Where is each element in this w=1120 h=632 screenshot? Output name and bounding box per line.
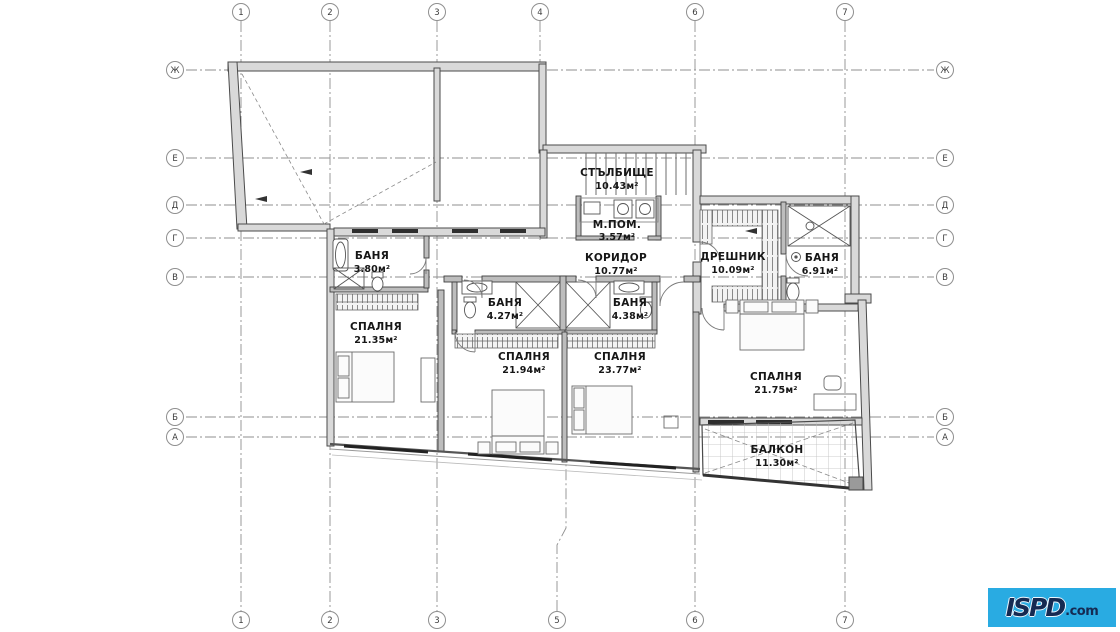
svg-text:Е: Е [942, 154, 947, 164]
wall-void-right [539, 64, 546, 153]
wall-corridor-a [444, 276, 462, 282]
room-label-bath-mid-right: БАНЯ [613, 297, 647, 309]
wall-column-stub [434, 68, 440, 201]
room-label-bath-east: БАНЯ [805, 252, 839, 264]
svg-text:В: В [942, 273, 948, 283]
wall-stair-top [543, 145, 706, 153]
svg-text:10.43м²: 10.43м² [595, 181, 638, 192]
svg-text:3.57м²: 3.57м² [599, 232, 636, 243]
svg-text:Д: Д [942, 201, 949, 211]
grid-col-1: 1 [238, 8, 243, 18]
floor-plan-canvas: 1 2 3 4 6 7 1 2 3 5 6 7 Ж Е Д Г В Б А Ж … [0, 0, 1120, 632]
room-label-bedroom-mid-left: СПАЛНЯ [498, 351, 550, 363]
wall-void-left [228, 62, 247, 229]
room-label-bedroom-west: СПАЛНЯ [350, 321, 402, 333]
grid-row-a: А [172, 433, 178, 443]
wall-closet-left-lower [693, 262, 701, 314]
room-label-stairwell: СТЪЛБИЩЕ [580, 167, 654, 179]
grid-row-g: Г [172, 234, 177, 244]
svg-text:А: А [942, 433, 948, 443]
svg-text:21.35м²: 21.35м² [354, 335, 397, 346]
svg-text:3: 3 [434, 616, 439, 626]
room-label-corridor: КОРИДОР [585, 252, 647, 264]
wall-corridor-d [684, 276, 700, 282]
wall-utility-right [656, 196, 661, 240]
svg-text:Ж: Ж [940, 66, 949, 76]
svg-text:2: 2 [327, 616, 332, 626]
dryer [636, 200, 654, 218]
wall-bedroomwest-right [438, 290, 444, 452]
grid-col-2: 2 [327, 8, 332, 18]
svg-text:11.30м²: 11.30м² [755, 458, 798, 469]
svg-text:3.80м²: 3.80м² [354, 264, 391, 275]
wall-void-top [228, 62, 546, 71]
room-label-bath-mid-left: БАНЯ [488, 297, 522, 309]
grid-row-e: Е [172, 154, 177, 164]
grid-col-6: 6 [692, 8, 697, 18]
svg-text:6: 6 [692, 616, 697, 626]
svg-text:Г: Г [942, 234, 947, 244]
void-diagonals [242, 74, 436, 224]
grid-col-3: 3 [434, 8, 439, 18]
wall-closet-bath-divider-a [781, 202, 786, 254]
svg-text:23.77м²: 23.77м² [598, 365, 641, 376]
svg-text:21.94м²: 21.94м² [502, 365, 545, 376]
wall-bathmid-left [452, 282, 457, 332]
wall-bedroom-midright-right [693, 312, 699, 472]
wall-void-bottom [238, 224, 330, 231]
svg-text:10.09м²: 10.09м² [711, 265, 754, 276]
svg-text:4.27м²: 4.27м² [487, 311, 524, 322]
utility-sink [584, 202, 600, 214]
grid-col-5: 5 [554, 616, 559, 626]
desk-east [814, 394, 856, 410]
toilet-mid-left [465, 302, 476, 318]
wall-east-right-lower [858, 300, 872, 490]
svg-text:1: 1 [238, 616, 243, 626]
svg-text:Б: Б [942, 413, 948, 423]
floor-plan-page: 1 2 3 4 6 7 1 2 3 5 6 7 Ж Е Д Г В Б А Ж … [0, 0, 1120, 632]
room-label-utility: М.ПОМ. [593, 219, 641, 231]
room-label-bath-west: БАНЯ [355, 250, 389, 262]
grid-col-7: 7 [842, 8, 847, 18]
wall-bathwest-right-a [424, 236, 429, 258]
wall-bathwest-right-b [424, 270, 429, 288]
svg-text:21.75м²: 21.75м² [754, 385, 797, 396]
desk-west [421, 358, 435, 402]
grid-row-d: Д [172, 201, 179, 211]
wall-bedroom-mid-divider [562, 332, 567, 462]
wall-east-right-upper [851, 196, 859, 302]
svg-text:10.77м²: 10.77м² [594, 266, 637, 277]
svg-text:4.38м²: 4.38м² [612, 311, 649, 322]
toilet-east [787, 283, 799, 301]
logo-main-text: ISPD [1006, 595, 1064, 620]
svg-text:7: 7 [842, 616, 847, 626]
wall-bathmid-center [560, 276, 566, 332]
wall-strip-left [475, 330, 565, 334]
wall-stair-left [540, 150, 547, 238]
room-label-bedroom-east: СПАЛНЯ [750, 371, 802, 383]
washer [614, 200, 632, 218]
grid-row-b: Б [172, 413, 178, 423]
ispd-logo: ISPD.com [988, 588, 1116, 627]
toilet-west [372, 277, 383, 291]
chair-east [824, 376, 841, 390]
grid-row-zh: Ж [170, 66, 179, 76]
wall-east-top [700, 196, 858, 204]
room-label-balcony: БАЛКОН [751, 444, 804, 456]
wall-utility-bottom-b [648, 236, 661, 240]
grid-col-4: 4 [537, 8, 542, 18]
svg-text:6.91м²: 6.91м² [802, 266, 839, 277]
grid-row-v: В [172, 273, 178, 283]
wall-bathmid-right [652, 282, 657, 332]
logo-suffix-text: .com [1065, 604, 1098, 619]
wall-strip-right [565, 330, 657, 334]
room-label-closet: ДРЕШНИК [700, 251, 766, 263]
room-label-bedroom-mid-right: СПАЛНЯ [594, 351, 646, 363]
